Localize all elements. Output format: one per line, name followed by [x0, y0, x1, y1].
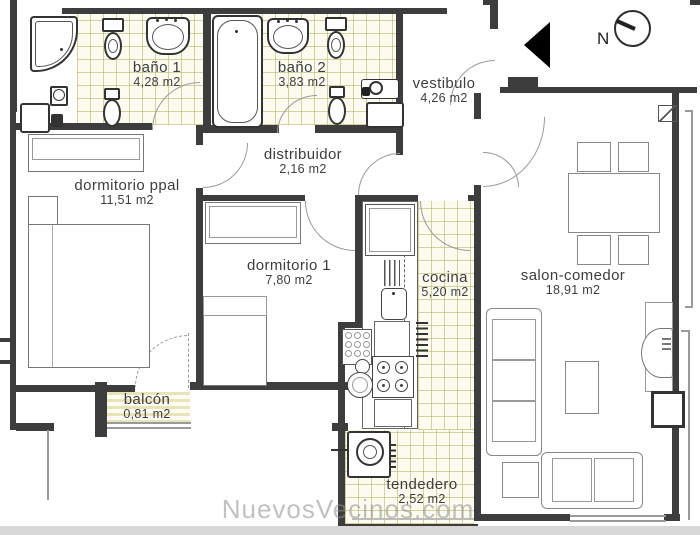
terrace-outline — [685, 306, 693, 308]
floor-plan: N baño 1 4,28 m2 baño 2 3,83 m2 vestibul… — [0, 0, 700, 535]
sofa-cushion — [492, 401, 536, 442]
toilet-bowl-inner — [331, 38, 341, 52]
door-arc-hall — [358, 153, 400, 195]
toilet-bowl-inner — [108, 39, 118, 53]
door-arc-bedroom-main — [203, 143, 248, 188]
door-arc-bedroom1 — [305, 201, 355, 251]
room-label-bano2: baño 2 3,83 m2 — [278, 60, 326, 89]
room-area: 2,16 m2 — [264, 163, 342, 176]
room-label-bano1: baño 1 4,28 m2 — [133, 60, 181, 89]
room-area: 4,28 m2 — [133, 76, 181, 89]
sofa-cushion — [594, 458, 634, 502]
room-name: tendedero — [386, 477, 457, 493]
wall — [474, 185, 481, 521]
room-name: dormitorio 1 — [247, 258, 331, 274]
bed — [28, 224, 150, 368]
room-area: 11,51 m2 — [74, 194, 179, 207]
basin-ring — [53, 89, 65, 101]
wall — [203, 14, 211, 132]
wardrobe-inner — [32, 138, 140, 160]
drainer-icon — [384, 260, 400, 286]
rack-dot — [345, 332, 352, 339]
tv-vent — [662, 338, 671, 340]
burner-icon — [395, 379, 408, 392]
radiator-icon — [416, 321, 428, 357]
dining-table — [568, 173, 660, 233]
balcony-door-line — [188, 333, 189, 388]
room-area: 4,26 m2 — [413, 92, 476, 105]
rack-dot — [363, 350, 370, 357]
terrace-outline — [691, 110, 693, 308]
wall — [672, 93, 679, 521]
corner-shower-inner — [35, 21, 73, 67]
wall — [332, 423, 348, 431]
wall — [202, 195, 305, 201]
washbasin-inner — [152, 24, 184, 50]
faucet-dot — [392, 292, 395, 295]
wall — [10, 108, 16, 430]
wall — [490, 5, 498, 29]
wall — [95, 382, 107, 437]
room-area: 18,91 m2 — [521, 284, 625, 297]
room-name: distribuidor — [264, 147, 342, 163]
bottom-bar — [0, 526, 700, 535]
north-label: N — [597, 29, 609, 49]
hall-basin-ring — [369, 81, 383, 95]
wall — [10, 0, 17, 112]
ladder-icon — [391, 442, 396, 468]
neighbor-outline — [47, 430, 49, 500]
rack-dot — [354, 350, 361, 357]
bathtub-inner — [217, 20, 258, 123]
washer-hose — [331, 449, 347, 451]
room-name: baño 1 — [133, 60, 181, 76]
rack-dot — [354, 341, 361, 348]
window — [570, 520, 666, 522]
rack-dot — [363, 332, 370, 339]
rack-dot — [354, 332, 361, 339]
faucet-dot — [165, 18, 168, 21]
bed-fold-line — [52, 225, 53, 367]
watermark: NuevosVecinos.com — [222, 494, 475, 525]
pillow — [203, 296, 267, 316]
side-table-dark — [651, 391, 685, 428]
balcony-railing — [107, 427, 191, 429]
tv-vent — [662, 343, 671, 345]
room-label-vestibulo: vestibulo 4,26 m2 — [413, 76, 476, 105]
sofa-cushion — [552, 458, 592, 502]
wall — [508, 77, 538, 91]
side-table — [502, 462, 539, 498]
wardrobe-inner — [209, 206, 297, 238]
balcony-railing — [107, 422, 191, 424]
faucet-dot — [277, 20, 280, 23]
room-label-distribuidor: distribuidor 2,16 m2 — [264, 147, 342, 176]
terrace-outline — [688, 330, 690, 520]
closet-unit — [20, 103, 50, 133]
terrace-outline — [685, 110, 693, 112]
toilet-tank — [102, 18, 124, 32]
faucet-dot — [174, 19, 177, 22]
wall — [16, 385, 135, 392]
fridge-inner — [369, 208, 411, 252]
room-name: vestibulo — [413, 76, 476, 92]
room-label-dormitorio1: dormitorio 1 7,80 m2 — [247, 258, 331, 287]
room-label-balcon: balcón 0,81 m2 — [123, 392, 170, 421]
faucet-dot — [156, 19, 159, 22]
room-area: 7,80 m2 — [247, 274, 331, 287]
window — [570, 515, 666, 517]
room-label-cocina: cocina 5,20 m2 — [421, 270, 468, 299]
dark-unit — [51, 114, 63, 127]
room-label-salon-comedor: salon-comedor 18,91 m2 — [521, 268, 625, 297]
burner-icon — [395, 361, 408, 374]
faucet-dot — [295, 20, 298, 23]
hall-cabinet — [366, 102, 404, 128]
chair — [618, 142, 649, 172]
chair — [618, 235, 649, 265]
wall — [396, 133, 403, 155]
wall — [355, 195, 362, 327]
wall — [0, 338, 12, 342]
sofa-cushion — [492, 319, 536, 360]
toilet-tank — [325, 17, 347, 31]
shower-drain — [60, 48, 63, 51]
wall — [196, 188, 203, 388]
pot-ring-inner — [352, 377, 368, 393]
entrance-arrow-icon — [524, 22, 550, 68]
terrace-outline — [681, 330, 690, 332]
room-name: dormitorio ppal — [74, 178, 179, 194]
counter-module — [374, 321, 410, 357]
room-name: baño 2 — [278, 60, 326, 76]
rack-dot — [345, 350, 352, 357]
wall — [690, 0, 700, 5]
bidet-bowl — [103, 99, 121, 127]
room-area: 5,20 m2 — [421, 286, 468, 299]
dark-unit — [362, 87, 370, 96]
burner-icon — [377, 379, 390, 392]
room-name: balcón — [123, 392, 170, 408]
bathtub-drain — [235, 30, 238, 33]
counter-module — [374, 399, 412, 427]
sofa-cushion — [492, 360, 536, 401]
washbasin-inner — [273, 25, 303, 49]
rack-dot — [363, 341, 370, 348]
wall — [62, 8, 447, 14]
tv-vent — [662, 348, 671, 350]
chair — [577, 142, 611, 172]
room-name: cocina — [421, 270, 468, 286]
bidet-bowl — [328, 97, 346, 125]
room-name: salon-comedor — [521, 268, 625, 284]
wall — [0, 360, 12, 364]
room-area: 0,81 m2 — [123, 408, 170, 421]
wall — [664, 514, 680, 521]
washing-machine-drum-inner — [363, 445, 377, 459]
coffee-table — [565, 361, 599, 414]
room-area: 3,83 m2 — [278, 76, 326, 89]
faucet-dot — [286, 19, 289, 22]
rack-dot — [345, 341, 352, 348]
pillow — [28, 196, 58, 226]
wall-end-symbol — [658, 105, 677, 122]
wall — [474, 514, 570, 521]
room-label-dormitorio-ppal: dormitorio ppal 11,51 m2 — [74, 178, 179, 207]
burner-icon — [377, 361, 390, 374]
chair — [577, 235, 611, 265]
